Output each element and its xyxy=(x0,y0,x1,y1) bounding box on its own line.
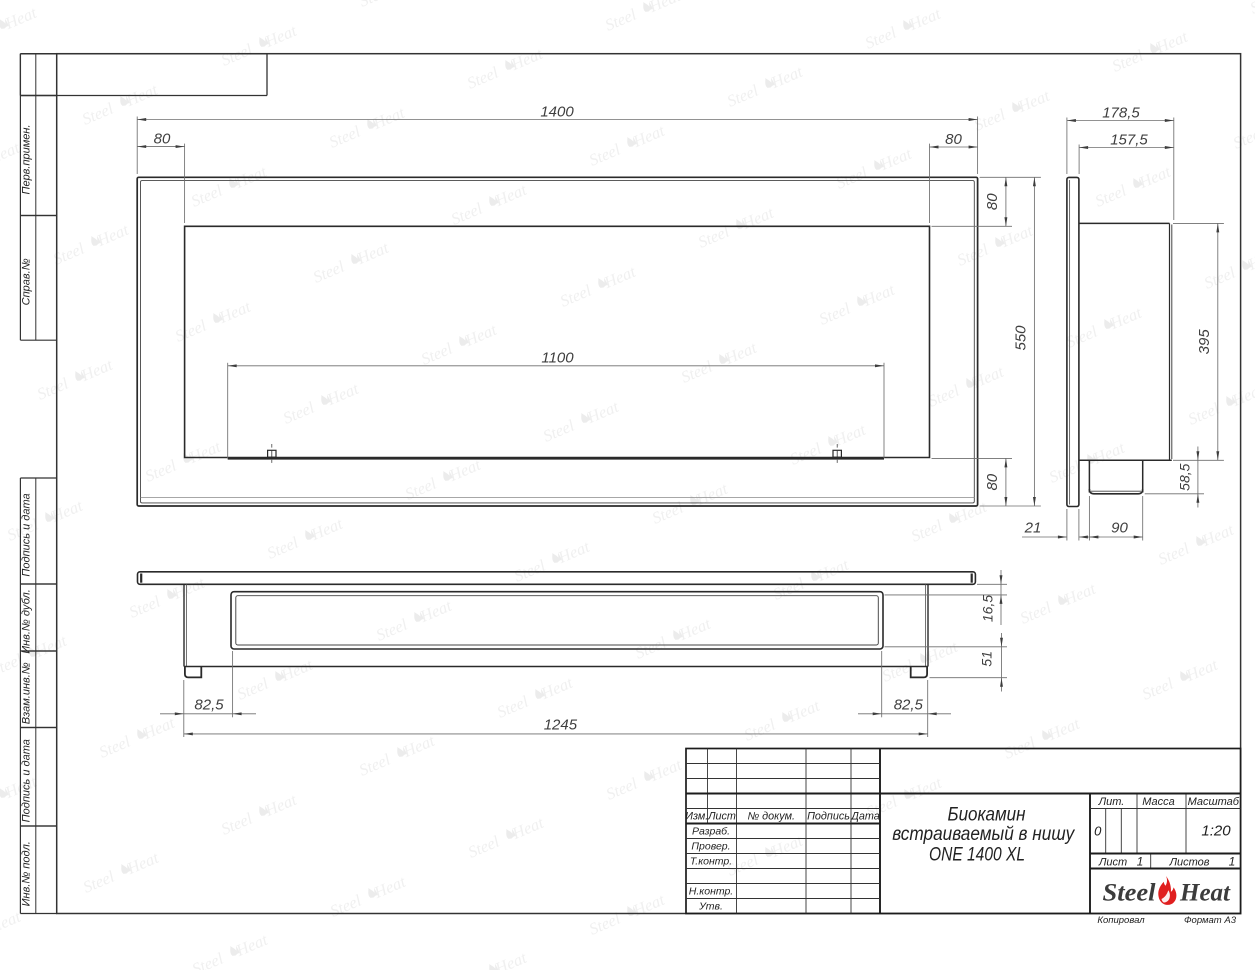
svg-text:Лист: Лист xyxy=(1098,856,1127,868)
svg-text:Steel: Steel xyxy=(1103,880,1156,907)
svg-text:встраиваемый в нишу: встраиваемый в нишу xyxy=(892,824,1075,845)
svg-text:16,5: 16,5 xyxy=(980,595,996,622)
svg-text:1400: 1400 xyxy=(540,103,574,120)
svg-text:№ докум.: № докум. xyxy=(747,810,795,822)
svg-text:ONE 1400 XL: ONE 1400 XL xyxy=(929,844,1025,865)
svg-text:Heat: Heat xyxy=(1179,880,1231,907)
svg-text:80: 80 xyxy=(984,193,1001,210)
svg-text:Взам.инв.№: Взам.инв.№ xyxy=(21,662,33,724)
svg-text:178,5: 178,5 xyxy=(1102,104,1140,121)
svg-text:1:20: 1:20 xyxy=(1201,823,1231,840)
svg-text:Подпись и дата: Подпись и дата xyxy=(21,493,33,576)
svg-text:Инв.№ подл.: Инв.№ подл. xyxy=(21,841,33,906)
svg-text:Подпись и дата: Подпись и дата xyxy=(21,739,33,822)
svg-text:Т.контр.: Т.контр. xyxy=(690,855,732,867)
svg-text:Масса: Масса xyxy=(1142,796,1175,808)
svg-text:Лит.: Лит. xyxy=(1098,796,1125,808)
svg-text:550: 550 xyxy=(1013,325,1030,351)
svg-text:Изм.: Изм. xyxy=(685,810,708,822)
svg-text:Лист: Лист xyxy=(707,810,736,822)
svg-text:1100: 1100 xyxy=(541,350,574,367)
svg-text:Перв.примен.: Перв.примен. xyxy=(21,124,33,194)
svg-text:80: 80 xyxy=(154,130,171,147)
svg-text:80: 80 xyxy=(984,473,1001,490)
svg-text:Биокамин: Биокамин xyxy=(948,805,1026,826)
svg-text:Разраб.: Разраб. xyxy=(692,825,730,837)
svg-text:21: 21 xyxy=(1024,520,1042,537)
svg-text:Провер.: Провер. xyxy=(691,840,730,852)
svg-text:1: 1 xyxy=(1137,854,1144,868)
svg-text:1: 1 xyxy=(1229,854,1236,868)
svg-text:Н.контр.: Н.контр. xyxy=(689,885,733,897)
svg-text:Подпись: Подпись xyxy=(807,810,850,822)
svg-text:51: 51 xyxy=(979,651,995,667)
svg-text:1245: 1245 xyxy=(544,717,578,734)
svg-text:Копировал: Копировал xyxy=(1097,915,1145,926)
svg-text:395: 395 xyxy=(1196,329,1213,355)
svg-text:80: 80 xyxy=(945,131,962,148)
svg-text:Справ.№: Справ.№ xyxy=(21,258,33,305)
svg-text:58,5: 58,5 xyxy=(1177,463,1193,490)
svg-text:0: 0 xyxy=(1094,824,1102,839)
svg-text:Масштаб: Масштаб xyxy=(1188,796,1240,808)
svg-text:90: 90 xyxy=(1111,520,1128,537)
svg-text:Формат А3: Формат А3 xyxy=(1184,915,1237,926)
svg-text:157,5: 157,5 xyxy=(1110,131,1148,148)
svg-text:Утв.: Утв. xyxy=(698,900,723,912)
svg-text:82,5: 82,5 xyxy=(894,697,924,714)
svg-text:Инв.№ дубл.: Инв.№ дубл. xyxy=(21,589,33,654)
svg-text:Листов: Листов xyxy=(1168,856,1209,868)
svg-text:Дата: Дата xyxy=(850,810,879,822)
svg-text:82,5: 82,5 xyxy=(194,697,224,714)
